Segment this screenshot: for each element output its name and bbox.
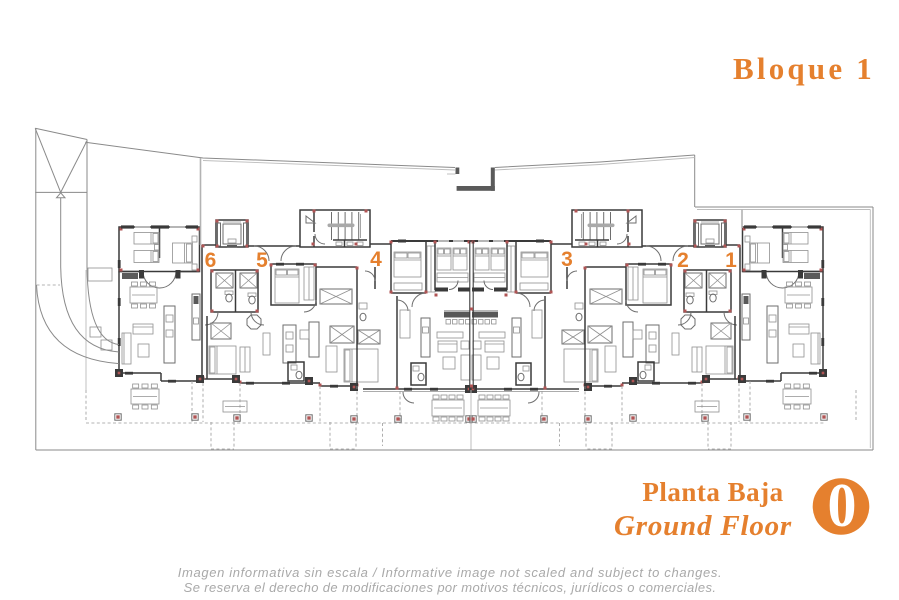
svg-text:1: 1	[725, 249, 737, 272]
svg-text:Ground Floor: Ground Floor	[614, 510, 792, 542]
svg-text:4: 4	[370, 248, 382, 271]
svg-text:6: 6	[205, 249, 217, 272]
svg-text:Se reserva el derecho de modif: Se reserva el derecho de modificaciones …	[184, 580, 717, 595]
svg-text:Imagen informativa sin escala: Imagen informativa sin escala / Informat…	[178, 565, 723, 580]
svg-text:2: 2	[677, 249, 689, 272]
svg-text:5: 5	[256, 249, 268, 272]
svg-text:0: 0	[828, 471, 857, 541]
svg-text:Bloque 1: Bloque 1	[733, 51, 875, 86]
svg-text:3: 3	[561, 248, 573, 271]
svg-text:Planta Baja: Planta Baja	[642, 477, 783, 507]
